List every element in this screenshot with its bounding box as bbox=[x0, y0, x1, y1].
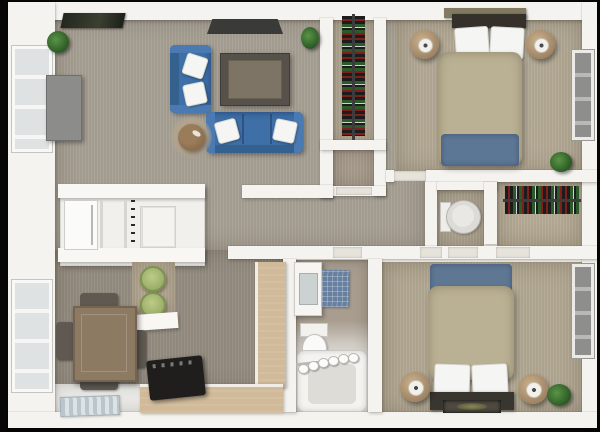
sofa-cushion-seam bbox=[270, 114, 272, 144]
wc-toilet-bowl bbox=[446, 200, 481, 234]
kitchen-cabinets bbox=[140, 206, 176, 248]
loveseat-back bbox=[170, 45, 179, 113]
throw-pillow bbox=[181, 52, 209, 80]
wc-toilet-lid bbox=[452, 205, 474, 227]
door-sill-bedroom-2 bbox=[420, 247, 442, 258]
window-left-dining bbox=[12, 280, 52, 392]
plant-bedroom-1 bbox=[550, 152, 572, 172]
bar-stool-1 bbox=[140, 266, 166, 292]
range-knob-strip bbox=[129, 200, 137, 248]
wall-living-closet bbox=[320, 18, 333, 198]
throw-pillow bbox=[214, 118, 241, 145]
kitchen-seam bbox=[100, 200, 103, 248]
plant-living-closet bbox=[301, 27, 319, 49]
l-counter-vertical bbox=[255, 262, 286, 388]
floor-plan-canvas bbox=[0, 0, 600, 432]
refrigerator bbox=[64, 200, 98, 250]
loveseat-arm-top bbox=[170, 45, 211, 53]
door-sill-nook bbox=[336, 187, 372, 195]
wall-mid-horizontal bbox=[228, 246, 597, 259]
kitchen-counter-top-slab bbox=[58, 184, 205, 198]
bed1-lamp-left bbox=[418, 38, 433, 53]
kitchen-seam bbox=[124, 200, 127, 248]
vanity-mirror bbox=[299, 273, 318, 305]
plant-living-corner bbox=[47, 31, 69, 53]
bed1-headboard bbox=[452, 14, 526, 28]
door-sill-walk-in-closet bbox=[496, 247, 530, 258]
rug-pattern bbox=[457, 403, 487, 410]
throw-pillow bbox=[182, 81, 208, 107]
bed1-lamp-right bbox=[534, 38, 549, 53]
wall-art bbox=[60, 13, 125, 28]
window-right-bedroom-1 bbox=[572, 50, 594, 140]
plant-bedroom-2 bbox=[547, 384, 571, 406]
dining-table bbox=[73, 306, 137, 382]
wall-wc-left bbox=[425, 182, 437, 248]
wall-bedroom-1-bottom-b bbox=[426, 170, 597, 182]
hall-closet-rod bbox=[352, 14, 355, 140]
bed2-lamp-right bbox=[526, 382, 542, 398]
bed2-lamp-left bbox=[408, 380, 424, 396]
door-sill-bedroom-1 bbox=[394, 171, 426, 181]
closet-nook-floor bbox=[333, 150, 374, 186]
blue-bath-mat bbox=[322, 270, 350, 307]
wall-wc-right bbox=[484, 182, 497, 244]
wall-closet-bedroom-1 bbox=[374, 18, 386, 196]
coffee-table bbox=[220, 53, 290, 106]
refrigerator-handle bbox=[91, 205, 93, 245]
round-ottoman bbox=[178, 124, 205, 151]
window-right-bedroom-2 bbox=[572, 264, 594, 358]
door-sill-wc bbox=[448, 247, 478, 258]
sofa bbox=[206, 112, 303, 153]
wall-tv bbox=[207, 19, 283, 34]
wall-living-south-stub bbox=[242, 185, 333, 198]
wall-bathroom-right bbox=[368, 259, 382, 412]
door-sill-bathroom bbox=[333, 247, 362, 258]
sofa-back bbox=[206, 145, 303, 153]
dining-table-inlay bbox=[81, 314, 127, 372]
striped-rug bbox=[60, 395, 121, 417]
coffee-table-top bbox=[228, 60, 282, 99]
vanity-sink bbox=[294, 262, 322, 316]
dining-chair-left bbox=[56, 322, 74, 360]
walk-in-closet-rod bbox=[503, 199, 581, 202]
sofa-cushion-seam bbox=[242, 114, 244, 144]
media-panel bbox=[46, 75, 82, 141]
black-range-stove bbox=[146, 355, 206, 401]
stove-controls bbox=[152, 360, 196, 369]
throw-pillow bbox=[272, 118, 298, 144]
bed1-blue-throw bbox=[441, 134, 519, 166]
ottoman-highlight bbox=[191, 129, 201, 138]
curtain-ring bbox=[348, 353, 359, 363]
loveseat bbox=[170, 45, 211, 113]
bed2-accent-rug bbox=[443, 400, 501, 413]
wall-closet-bottom bbox=[320, 140, 386, 150]
kitchen-counter-bottom-slab bbox=[58, 248, 205, 262]
wall-bedroom-1-bottom-a bbox=[386, 170, 394, 182]
